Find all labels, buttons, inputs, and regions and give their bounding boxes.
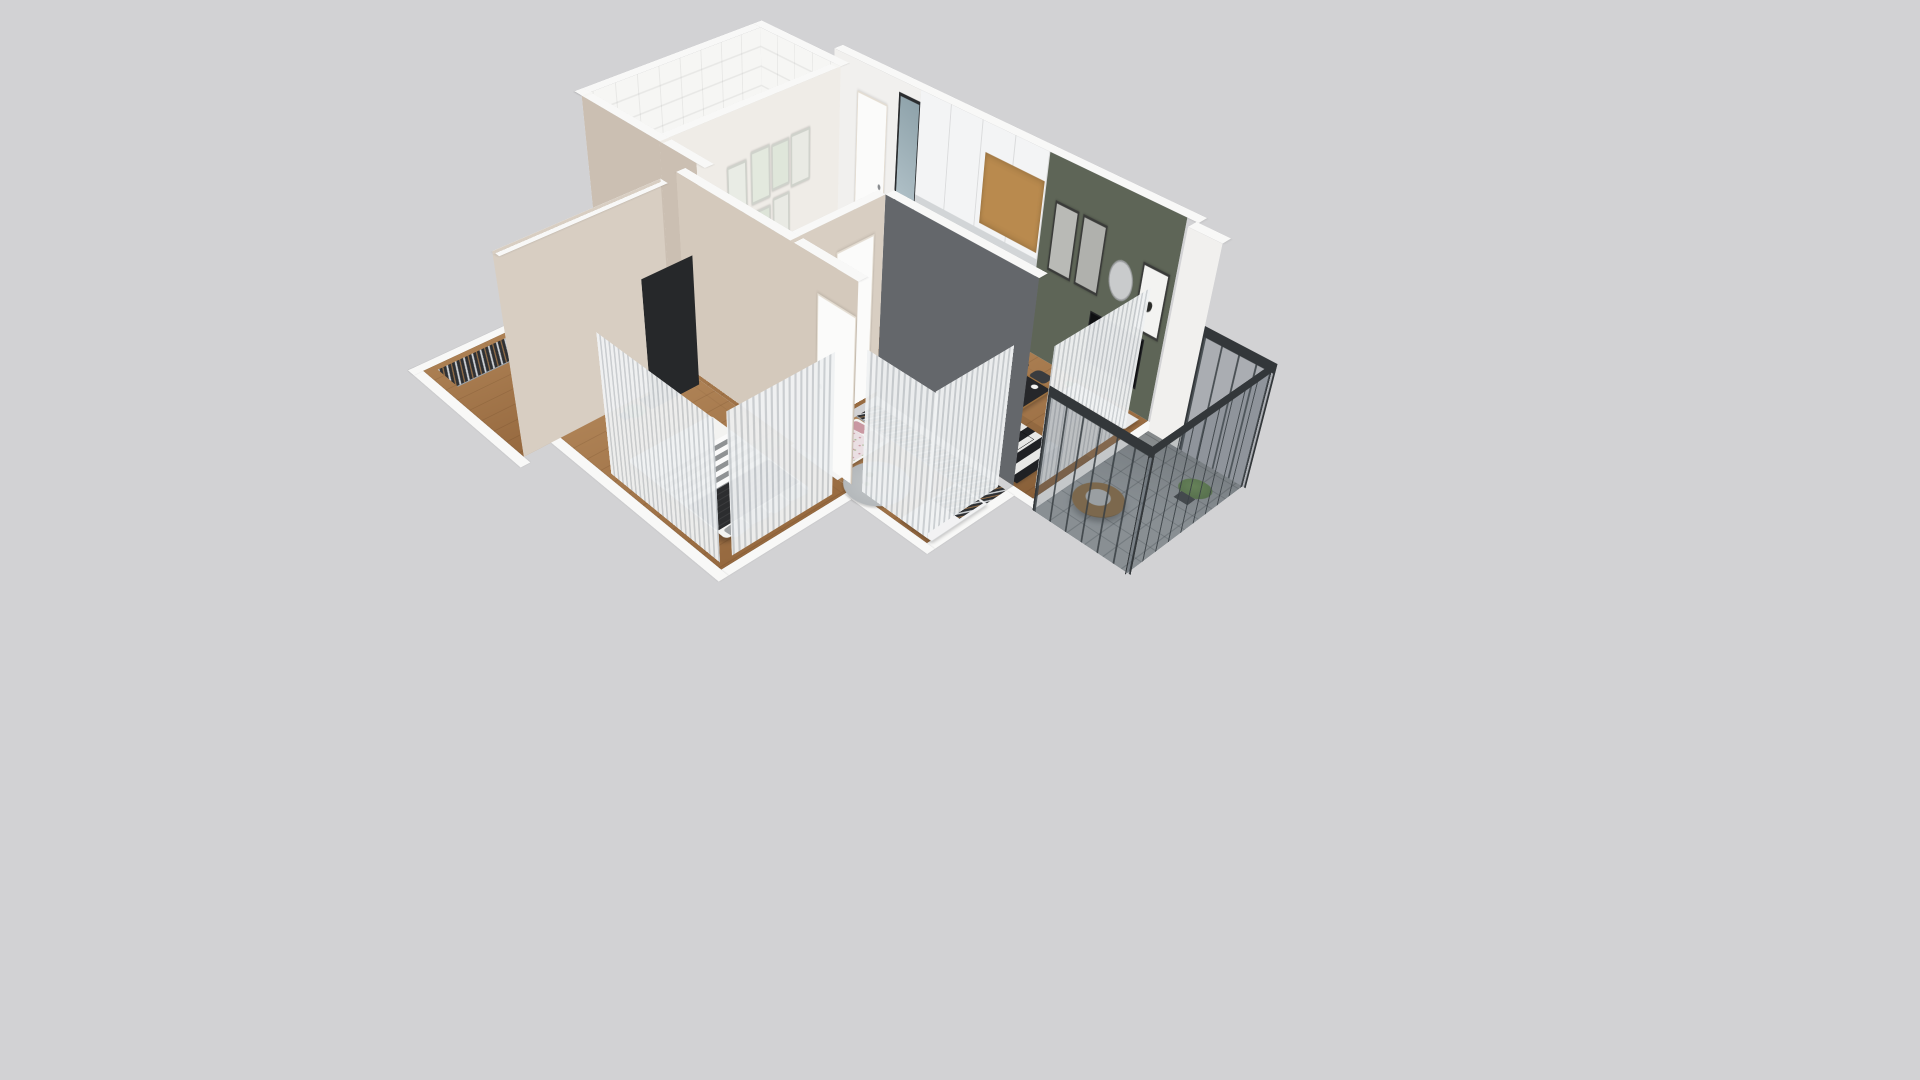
gallery-frame-2 bbox=[771, 137, 789, 191]
gallery-frame-1 bbox=[791, 127, 810, 188]
floor-plan bbox=[365, 205, 1269, 825]
render-canvas bbox=[0, 0, 1920, 1080]
gallery-frame-3 bbox=[751, 144, 771, 205]
abstract-art-2 bbox=[1074, 214, 1108, 296]
